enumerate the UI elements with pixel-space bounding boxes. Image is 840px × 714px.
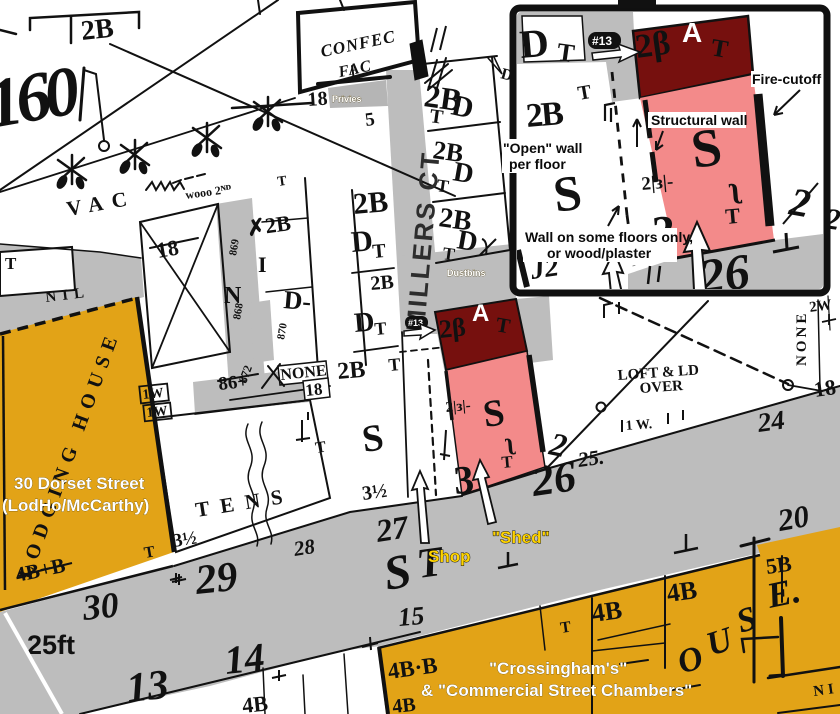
svg-text:4B: 4B bbox=[241, 690, 269, 714]
svg-text:3½: 3½ bbox=[171, 527, 198, 551]
svg-text:1 W.: 1 W. bbox=[625, 417, 652, 434]
svg-text:2B: 2B bbox=[524, 95, 564, 135]
svg-text:"Crossingham's": "Crossingham's" bbox=[489, 659, 627, 678]
svg-text:2|з|-: 2|з|- bbox=[641, 171, 675, 195]
svg-text:15: 15 bbox=[397, 601, 425, 632]
svg-text:Fire-cutoff: Fire-cutoff bbox=[752, 71, 822, 87]
svg-text:2β: 2β bbox=[633, 24, 673, 66]
svg-text:2B: 2B bbox=[336, 357, 366, 385]
svg-text:D: D bbox=[350, 224, 374, 259]
svg-text:2B: 2B bbox=[79, 13, 115, 47]
svg-text:A: A bbox=[472, 300, 489, 327]
svg-text:30 Dorset Street: 30 Dorset Street bbox=[14, 474, 145, 493]
svg-text:2β: 2β bbox=[438, 312, 468, 344]
svg-text:per floor: per floor bbox=[509, 156, 566, 172]
svg-text:3: 3 bbox=[452, 456, 476, 503]
svg-text:Dustbins: Dustbins bbox=[447, 268, 486, 278]
svg-text:Structural wall: Structural wall bbox=[651, 112, 747, 128]
svg-text:18: 18 bbox=[304, 379, 323, 400]
svg-text:A: A bbox=[682, 17, 702, 48]
svg-text:4B: 4B bbox=[665, 575, 699, 608]
svg-text:"Open" wall: "Open" wall bbox=[503, 140, 582, 156]
svg-text:86+: 86+ bbox=[217, 371, 249, 395]
svg-text:T: T bbox=[388, 354, 402, 375]
svg-text:2|з|-: 2|з|- bbox=[445, 398, 471, 416]
svg-text:20: 20 bbox=[774, 498, 812, 538]
svg-text:25.: 25. bbox=[575, 445, 605, 473]
svg-text:I: I bbox=[258, 252, 267, 277]
svg-text:Wall on some floors only,: Wall on some floors only, bbox=[525, 229, 693, 245]
svg-text:T: T bbox=[372, 240, 388, 263]
svg-text:25ft: 25ft bbox=[27, 630, 75, 660]
svg-text:D-: D- bbox=[282, 285, 312, 316]
svg-text:#13: #13 bbox=[592, 34, 612, 48]
svg-text:"Shed": "Shed" bbox=[492, 528, 550, 547]
svg-text:D: D bbox=[353, 306, 376, 339]
svg-text:2B: 2B bbox=[352, 185, 390, 221]
svg-text:18: 18 bbox=[307, 88, 328, 111]
svg-text:T: T bbox=[724, 203, 741, 229]
svg-text:(LodHo/McCarthy): (LodHo/McCarthy) bbox=[2, 496, 149, 515]
svg-text:14: 14 bbox=[222, 634, 266, 683]
svg-text:2B: 2B bbox=[370, 271, 395, 295]
svg-text:D: D bbox=[518, 20, 551, 67]
svg-text:30: 30 bbox=[80, 584, 121, 628]
svg-text:OVER: OVER bbox=[639, 378, 684, 397]
svg-text:4B: 4B bbox=[590, 595, 624, 628]
svg-text:T: T bbox=[374, 318, 388, 339]
svg-text:13: 13 bbox=[124, 662, 171, 712]
svg-text:T: T bbox=[5, 254, 17, 273]
svg-text:2W: 2W bbox=[808, 297, 833, 316]
svg-text:& "Commercial Street Chambers": & "Commercial Street Chambers" bbox=[421, 681, 692, 700]
svg-text:24: 24 bbox=[755, 404, 787, 438]
svg-text:29: 29 bbox=[192, 554, 240, 604]
svg-text:Privies: Privies bbox=[332, 94, 362, 104]
svg-text:18: 18 bbox=[155, 234, 181, 262]
svg-text:4B: 4B bbox=[391, 694, 417, 714]
svg-text:18: 18 bbox=[812, 374, 837, 402]
svg-text:1W: 1W bbox=[146, 404, 168, 421]
svg-text:3½: 3½ bbox=[361, 480, 389, 505]
svg-text:1W: 1W bbox=[142, 386, 164, 403]
svg-text:N I: N I bbox=[812, 681, 835, 700]
svg-text:Shop: Shop bbox=[428, 547, 471, 566]
svg-text:28: 28 bbox=[291, 534, 317, 561]
svg-text:or wood/plaster: or wood/plaster bbox=[547, 245, 652, 261]
svg-text:NONE: NONE bbox=[794, 311, 810, 366]
